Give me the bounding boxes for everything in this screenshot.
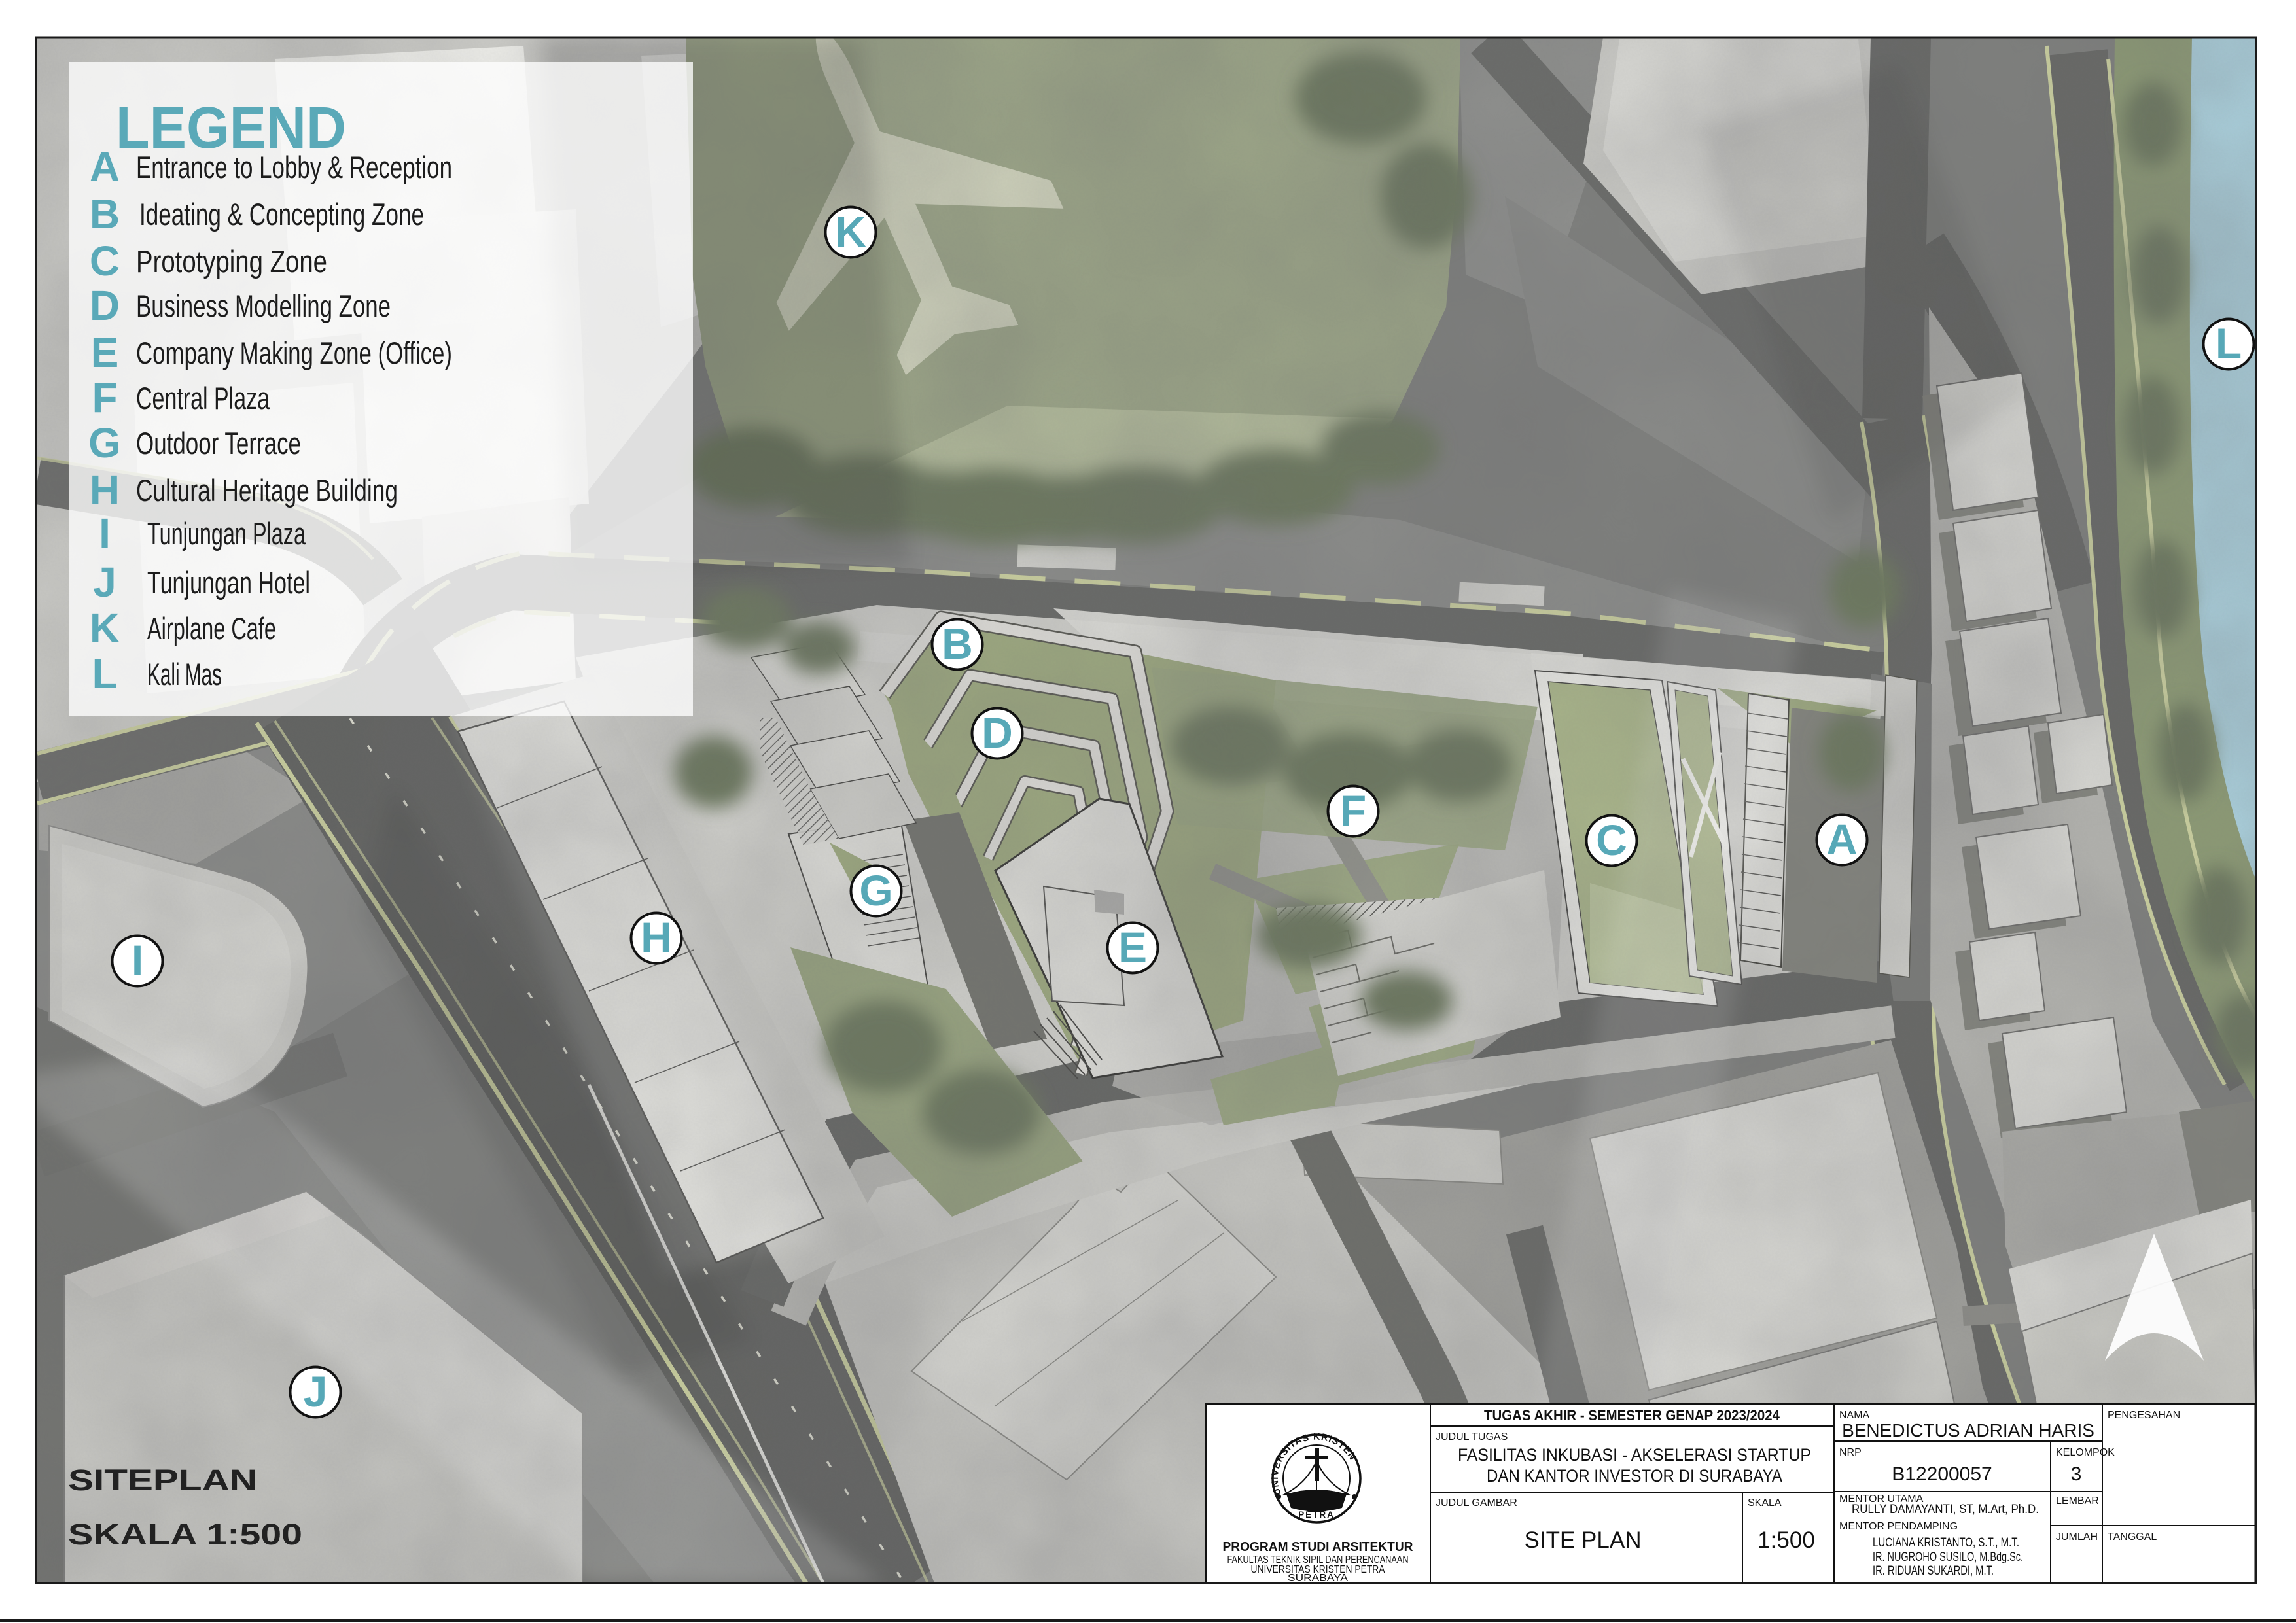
svg-text:SURABAYA: SURABAYA bbox=[1288, 1573, 1348, 1584]
svg-text:NRP: NRP bbox=[1839, 1447, 1862, 1458]
svg-text:I: I bbox=[99, 510, 111, 557]
svg-text:JUMLAH: JUMLAH bbox=[2056, 1531, 2098, 1543]
svg-text:F: F bbox=[1340, 786, 1366, 835]
svg-text:J: J bbox=[304, 1367, 328, 1416]
svg-text:MENTOR PENDAMPING: MENTOR PENDAMPING bbox=[1839, 1521, 1958, 1532]
svg-text:B: B bbox=[942, 620, 973, 668]
svg-text:F: F bbox=[92, 374, 117, 421]
svg-text:LEMBAR: LEMBAR bbox=[2056, 1495, 2099, 1507]
svg-text:LUCIANA KRISTANTO, S.T., M.T.: LUCIANA KRISTANTO, S.T., M.T. bbox=[1873, 1536, 2019, 1550]
svg-text:Central Plaza: Central Plaza bbox=[136, 381, 270, 415]
svg-text:SKALA: SKALA bbox=[1748, 1497, 1782, 1509]
svg-text:Entrance to Lobby & Reception: Entrance to Lobby & Reception bbox=[136, 150, 452, 184]
svg-text:SKALA 1:500: SKALA 1:500 bbox=[68, 1518, 302, 1551]
svg-text:I: I bbox=[132, 936, 143, 985]
svg-text:Prototyping Zone: Prototyping Zone bbox=[136, 244, 327, 279]
svg-text:BENEDICTUS ADRIAN HARIS: BENEDICTUS ADRIAN HARIS bbox=[1842, 1420, 2094, 1440]
svg-text:SITEPLAN: SITEPLAN bbox=[68, 1463, 257, 1497]
svg-text:G: G bbox=[88, 419, 121, 466]
svg-text:Kali Mas: Kali Mas bbox=[147, 657, 222, 691]
svg-text:RULLY DAMAYANTI, ST, M.Art, Ph: RULLY DAMAYANTI, ST, M.Art, Ph.D. bbox=[1852, 1502, 2039, 1516]
svg-text:KELOMPOK: KELOMPOK bbox=[2056, 1447, 2115, 1458]
svg-text:L: L bbox=[92, 650, 117, 697]
svg-text:H: H bbox=[90, 466, 120, 514]
svg-text:D: D bbox=[90, 282, 120, 329]
svg-text:C: C bbox=[90, 237, 120, 285]
svg-text:D: D bbox=[981, 708, 1013, 757]
svg-text:FASILITAS INKUBASI - AKSELERAS: FASILITAS INKUBASI - AKSELERASI STARTUP bbox=[1458, 1445, 1811, 1465]
svg-text:PROGRAM STUDI ARSITEKTUR: PROGRAM STUDI ARSITEKTUR bbox=[1223, 1540, 1414, 1554]
svg-text:Company Making Zone (Office): Company Making Zone (Office) bbox=[136, 336, 452, 370]
svg-text:Tunjungan Plaza: Tunjungan Plaza bbox=[147, 516, 306, 551]
svg-text:TUGAS AKHIR - SEMESTER GENAP 2: TUGAS AKHIR - SEMESTER GENAP 2023/2024 bbox=[1484, 1407, 1780, 1423]
svg-text:L: L bbox=[2216, 319, 2242, 368]
svg-text:IR. NUGROHO SUSILO, M.Bdg.Sc.: IR. NUGROHO SUSILO, M.Bdg.Sc. bbox=[1873, 1550, 2023, 1564]
svg-text:Airplane Cafe: Airplane Cafe bbox=[147, 611, 276, 646]
svg-text:TANGGAL: TANGGAL bbox=[2108, 1531, 2157, 1543]
svg-text:A: A bbox=[90, 143, 120, 190]
svg-text:Ideating & Concepting Zone: Ideating & Concepting Zone bbox=[139, 197, 424, 232]
svg-text:3: 3 bbox=[2071, 1463, 2082, 1485]
svg-text:1:500: 1:500 bbox=[1757, 1527, 1815, 1553]
svg-text:JUDUL TUGAS: JUDUL TUGAS bbox=[1436, 1431, 1508, 1442]
svg-text:Business Modelling Zone: Business Modelling Zone bbox=[136, 288, 391, 323]
svg-text:B12200057: B12200057 bbox=[1892, 1463, 1992, 1485]
svg-text:PENGESAHAN: PENGESAHAN bbox=[2108, 1410, 2180, 1421]
svg-text:NAMA: NAMA bbox=[1839, 1410, 1870, 1421]
svg-text:DAN KANTOR INVESTOR DI SURABAY: DAN KANTOR INVESTOR DI SURABAYA bbox=[1487, 1466, 1782, 1486]
svg-text:E: E bbox=[1118, 923, 1147, 971]
svg-text:IR. RIDUAN SUKARDI, M.T.: IR. RIDUAN SUKARDI, M.T. bbox=[1873, 1564, 1994, 1578]
svg-text:Cultural Heritage Building: Cultural Heritage Building bbox=[136, 473, 398, 508]
svg-text:C: C bbox=[1596, 816, 1627, 864]
svg-text:A: A bbox=[1826, 815, 1858, 864]
svg-text:E: E bbox=[91, 329, 119, 376]
svg-text:K: K bbox=[835, 207, 866, 256]
svg-text:K: K bbox=[90, 604, 120, 652]
svg-text:PETRA: PETRA bbox=[1298, 1510, 1335, 1520]
svg-text:H: H bbox=[641, 913, 672, 962]
svg-text:Tunjungan Hotel: Tunjungan Hotel bbox=[147, 565, 310, 600]
svg-text:J: J bbox=[93, 559, 116, 606]
svg-text:B: B bbox=[90, 190, 120, 237]
svg-text:JUDUL GAMBAR: JUDUL GAMBAR bbox=[1436, 1497, 1517, 1509]
svg-text:G: G bbox=[859, 866, 892, 915]
svg-text:Outdoor Terrace: Outdoor Terrace bbox=[136, 426, 301, 461]
svg-text:SITE PLAN: SITE PLAN bbox=[1525, 1527, 1642, 1553]
